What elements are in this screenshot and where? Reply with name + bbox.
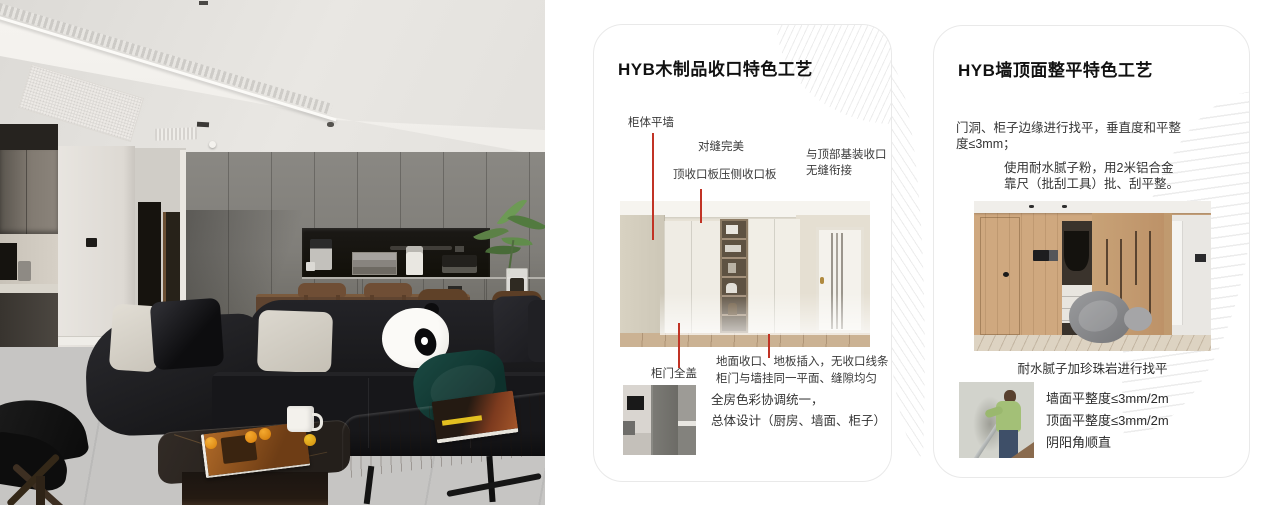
panda-eye: [421, 337, 428, 345]
annotation-floor-note: 地面收口、地板插入，无收口线条 柜门与墙挂同一平面、缝隙均匀: [716, 354, 889, 388]
hanging-clothes: [1064, 231, 1089, 271]
ceiling-sensor: [209, 141, 216, 148]
hallway-diffuser: [155, 127, 197, 140]
door-handle-black: [1003, 272, 1009, 277]
worker-legs: [999, 430, 1018, 458]
photo2-ceiling: [974, 201, 1211, 213]
image-caption: 耐水腻子加珍珠岩进行找平: [974, 358, 1211, 377]
coffee-machine: [18, 261, 31, 281]
annotation-door-full-cover: 柜门全盖: [651, 366, 697, 382]
wardrobe-groove: [1106, 239, 1108, 285]
annotation-ceiling-joint: 与顶部基装收口 无缝衔接: [806, 147, 887, 179]
pillow-black-leather: [150, 298, 225, 371]
metric-wall: 墙面平整度≤3mm/2m: [1046, 388, 1169, 410]
render-floor: [620, 333, 870, 347]
stone-coffee-table: [158, 424, 350, 505]
annotation-cabinet-flush-wall: 柜体平墙: [628, 115, 674, 131]
flatness-metrics: 墙面平整度≤3mm/2m 顶面平整度≤3mm/2m 阴阳角顺直: [1046, 388, 1169, 454]
wood-closet-image: [974, 201, 1211, 351]
doorway-jamb: [1164, 213, 1172, 337]
ceiling-vent-slit: [199, 1, 208, 5]
page: HYB木制品收口特色工艺 柜体平墙 对缝完美 顶收口板压侧收口板 与顶部基装收口…: [0, 0, 1280, 505]
mug-white: [287, 406, 314, 432]
light-reflection: [660, 293, 870, 335]
pillow-dark: [528, 300, 545, 362]
shelf-item: [728, 263, 736, 273]
outlet: [455, 246, 464, 252]
shelf-item: [725, 245, 741, 252]
orange-fruit: [205, 437, 217, 449]
card-woodwork: HYB木制品收口特色工艺 柜体平墙 对缝完美 顶收口板压侧收口板 与顶部基装收口…: [593, 24, 892, 482]
walnut-coffee-table: [338, 394, 545, 505]
metric-ceiling: 顶面平整度≤3mm/2m: [1046, 410, 1169, 432]
wall-panel-small: [1195, 254, 1206, 262]
cup-rack: [352, 252, 397, 275]
card-woodwork-title: HYB木制品收口特色工艺: [618, 55, 813, 80]
white-door-sliver: [1172, 221, 1183, 325]
ceiling-spot: [1062, 205, 1067, 208]
shelf-item: [726, 225, 738, 234]
wardrobe-groove: [1149, 231, 1151, 321]
table-base: [182, 472, 328, 505]
orange-fruit: [304, 434, 316, 446]
door-knob: [820, 277, 824, 284]
card-wall-title: HYB墙顶面整平特色工艺: [958, 56, 1153, 81]
chair-wood-leg: [36, 476, 45, 505]
cabinet-seam: [26, 150, 27, 234]
ceiling-vent-slit: [197, 122, 209, 128]
plant: [468, 200, 545, 300]
leveling-paragraph-2: 使用耐水腻子粉，用2米铝合金 靠尺（批刮工具）批、刮平整。: [1004, 160, 1179, 192]
annotation-perfect-seam: 对缝完美: [698, 139, 744, 155]
pillow-cream: [257, 310, 333, 374]
thumb-grey-cabinet: [651, 385, 680, 455]
leaf: [473, 221, 509, 248]
wood-door-outline: [980, 217, 1020, 335]
worker-thumb-image: [959, 382, 1034, 458]
orange-fruit: [259, 428, 271, 440]
thumb-lower-cabinet: [678, 426, 696, 455]
kitchen-lower-cabinets: [0, 293, 58, 347]
kitchen-upper-cabinets: [0, 150, 58, 234]
wardrobe-groove: [1135, 231, 1137, 285]
living-room-photo: [0, 0, 545, 505]
thumb-upper-cabinet: [678, 385, 696, 421]
metric-corner: 阴阳角顺直: [1046, 432, 1169, 454]
annotation-line: [652, 133, 654, 240]
kitchen-ceiling-recess: [0, 124, 58, 152]
kitchen-counter: [0, 284, 58, 293]
render-left-wall: [620, 215, 665, 333]
annotation-line: [700, 189, 702, 223]
kitchen-thumb-image: [623, 385, 696, 455]
annotation-line: [678, 323, 680, 368]
orange-fruit: [245, 431, 257, 443]
built-in-appliance: [0, 243, 17, 280]
leveling-paragraph-1: 门洞、柜子边缘进行找平，垂直度和平整 度≤3mm；: [956, 120, 1181, 152]
shelf-item: [726, 283, 737, 293]
ceiling-spot: [1029, 205, 1034, 208]
annotation-line: [768, 334, 770, 358]
thumb-floor: [623, 433, 653, 455]
capsule-machine: [406, 246, 423, 275]
thumb-sofa: [623, 421, 635, 435]
card-wall-leveling: HYB墙顶面整平特色工艺 门洞、柜子边缘进行找平，垂直度和平整 度≤3mm； 使…: [933, 25, 1250, 478]
wardrobe-render-image: [620, 201, 870, 347]
thermostat: [86, 238, 97, 247]
appliance-niche: [302, 228, 490, 277]
mug: [306, 262, 315, 271]
intercom-panel: [1033, 250, 1058, 261]
metal-leg: [486, 456, 495, 502]
thumb-wall-tv: [627, 396, 644, 410]
color-coordination-note: 全房色彩协调统一， 总体设计（厨房、墙面、柜子）: [711, 390, 886, 432]
downlight-dot: [327, 122, 334, 127]
annotation-top-closure-panel: 顶收口板压侧收口板: [673, 167, 777, 183]
pouf: [1124, 307, 1152, 331]
